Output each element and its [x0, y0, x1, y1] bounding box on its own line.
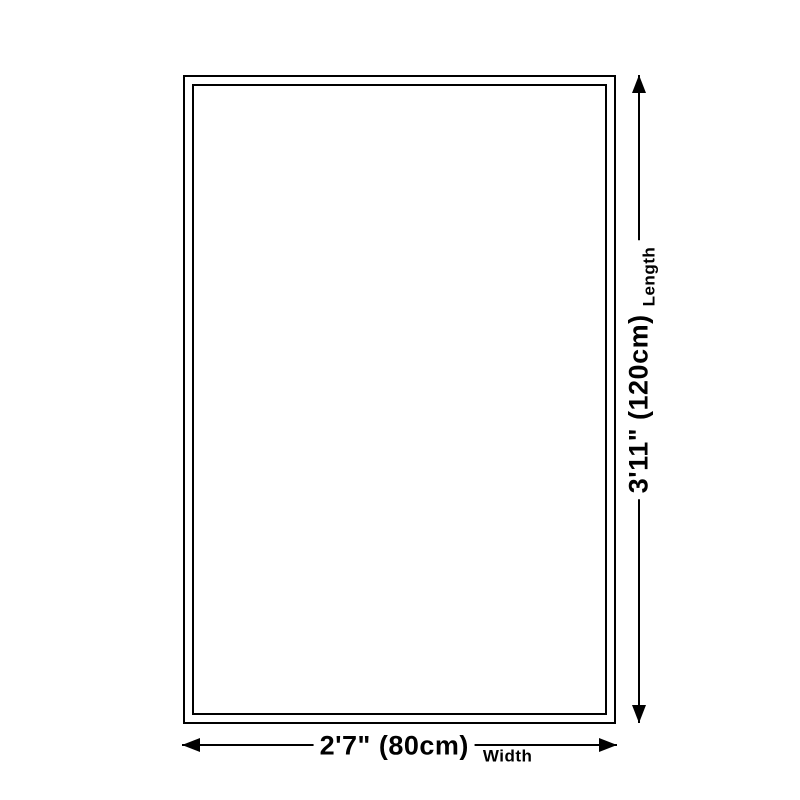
- arrow-down-icon: [632, 705, 646, 723]
- arrow-right-icon: [599, 738, 617, 752]
- product-outline-inner: [192, 84, 607, 715]
- length-caption: Length: [640, 247, 659, 307]
- width-value: 2'7" (80cm): [314, 729, 475, 763]
- length-dimension-label: 3'11" (120cm)Length: [622, 241, 657, 500]
- rug-size-diagram: 3'11" (120cm)Length 2'7" (80cm)Width: [0, 0, 800, 800]
- arrow-left-icon: [182, 738, 200, 752]
- width-caption: Width: [483, 747, 533, 766]
- arrow-up-icon: [632, 75, 646, 93]
- width-dimension-label: 2'7" (80cm)Width: [314, 731, 533, 762]
- length-value: 3'11" (120cm): [624, 314, 654, 493]
